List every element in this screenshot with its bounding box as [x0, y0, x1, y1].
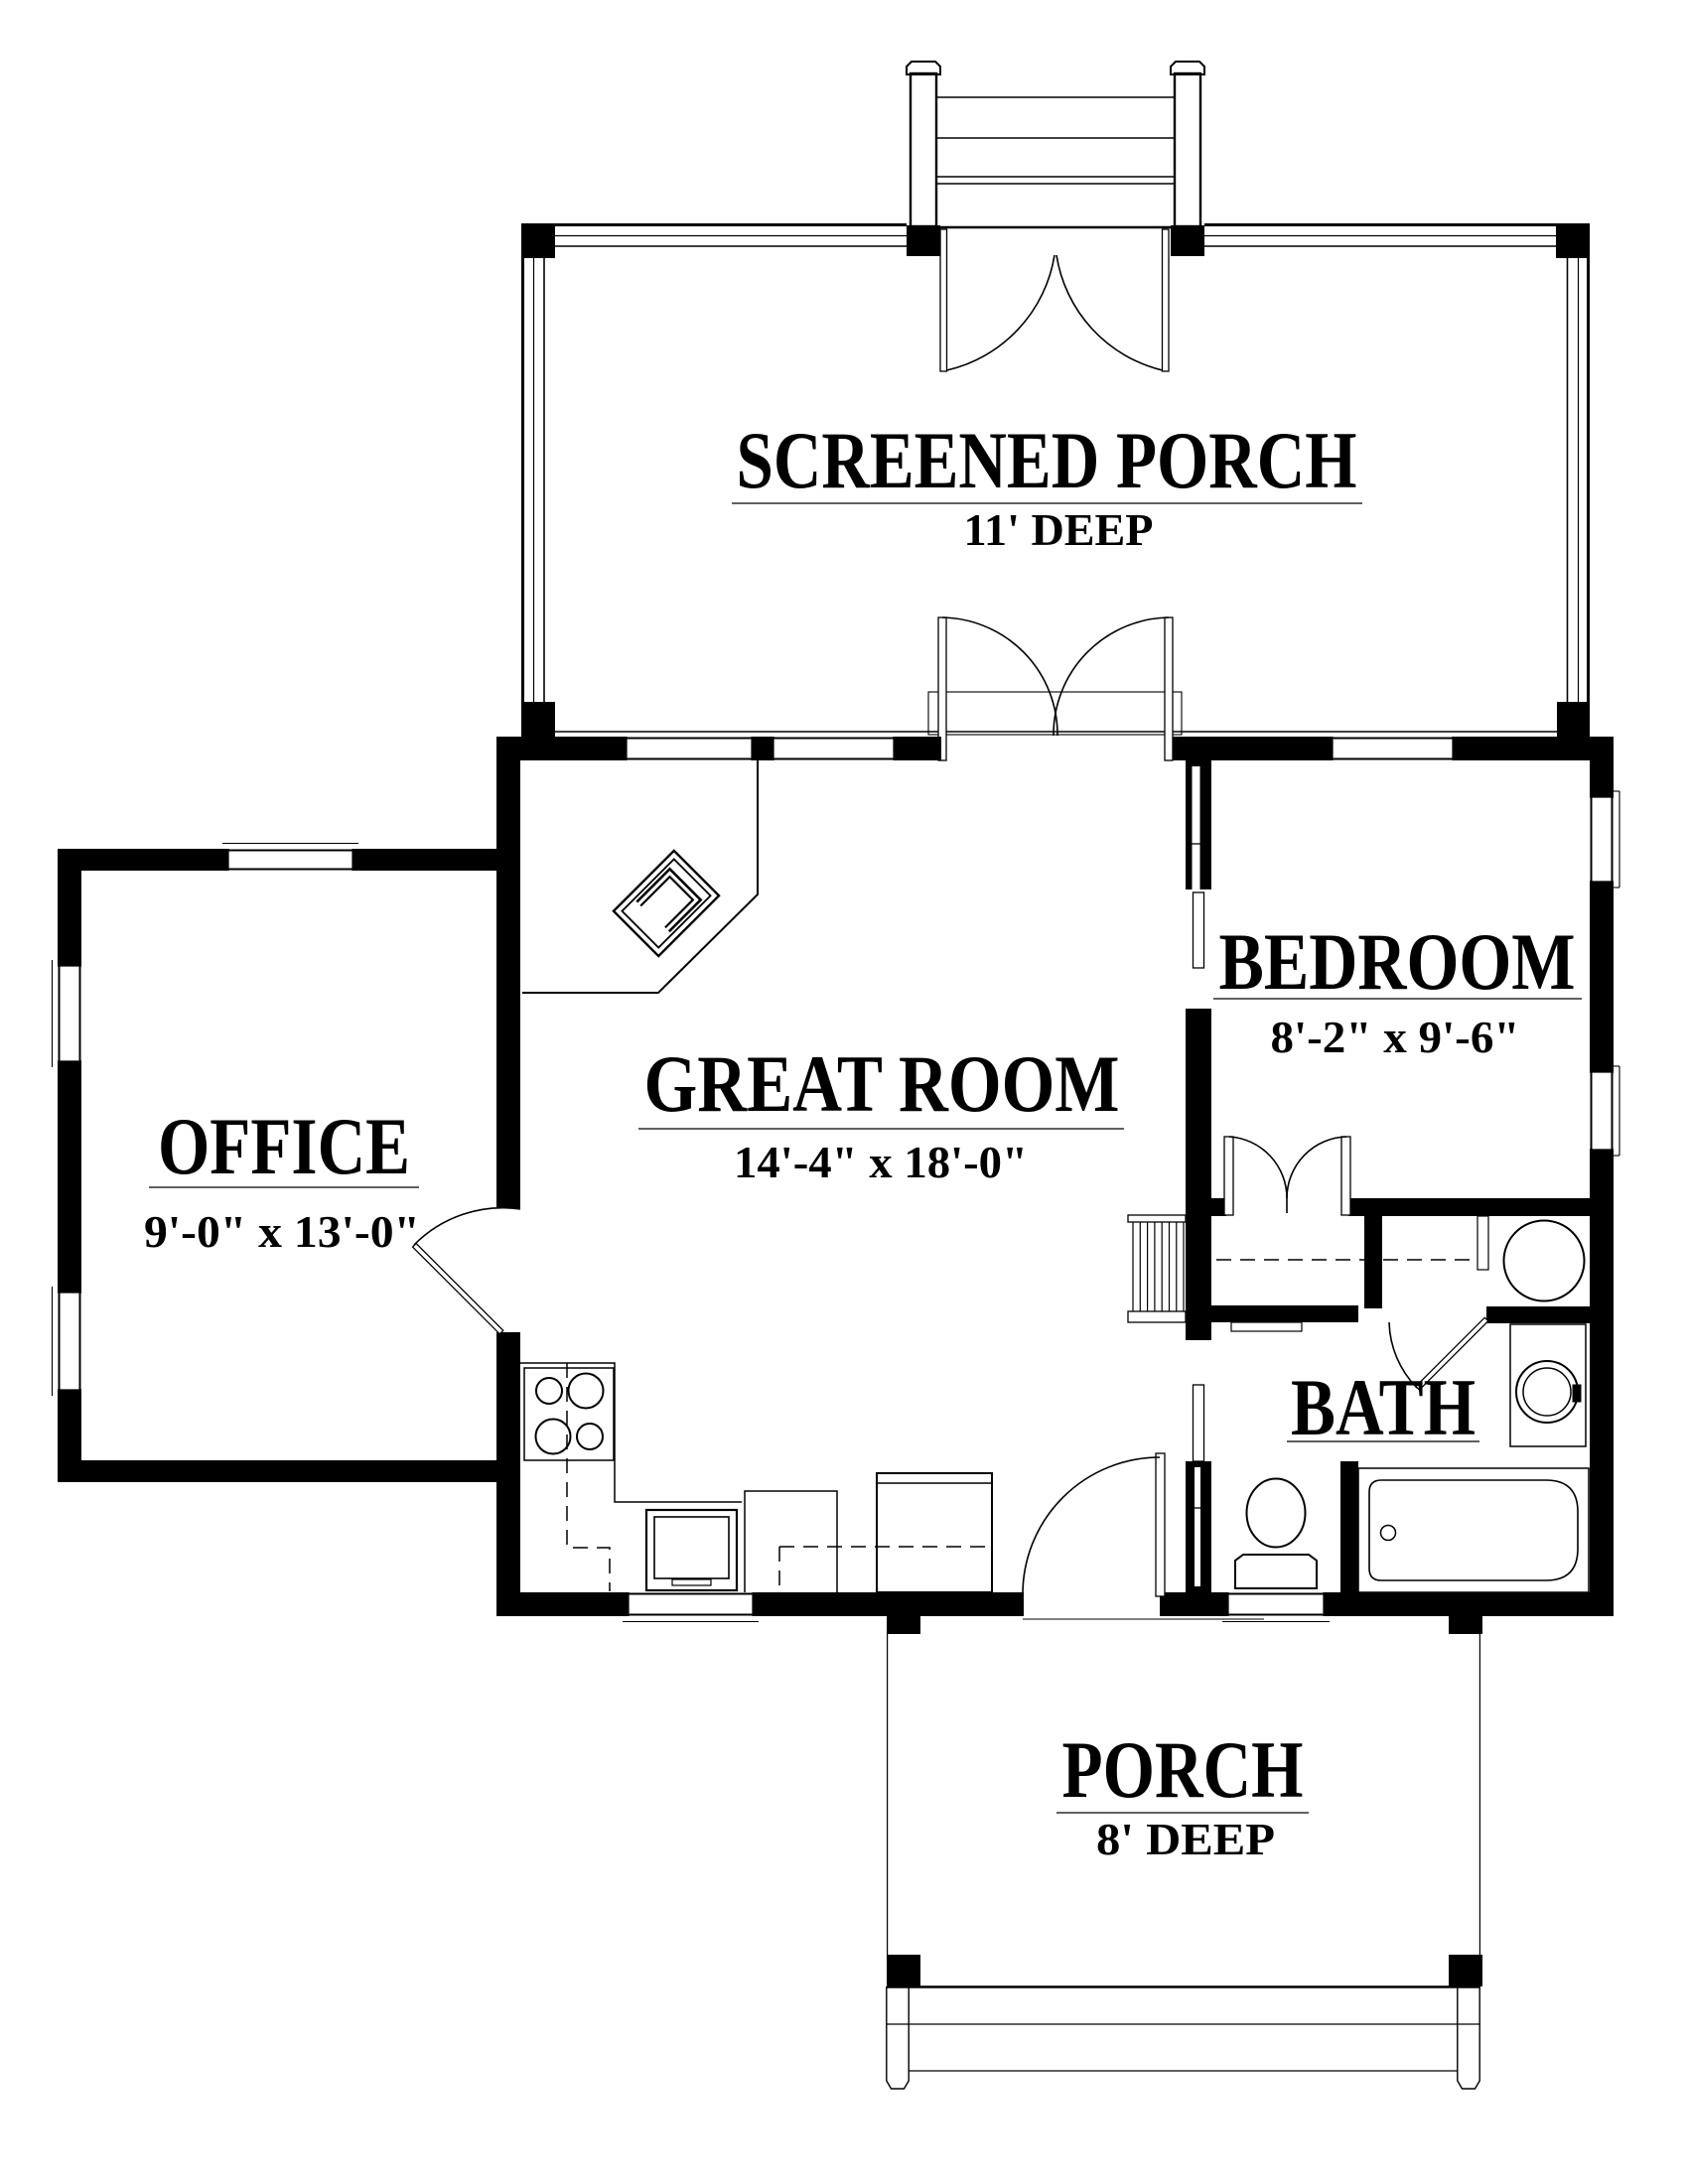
- svg-text:BATH: BATH: [1291, 1362, 1476, 1452]
- svg-text:SCREENED PORCH: SCREENED PORCH: [737, 415, 1357, 505]
- svg-text:BEDROOM: BEDROOM: [1219, 916, 1576, 1007]
- svg-text:14'-4" x 18'-0": 14'-4" x 18'-0": [734, 1137, 1028, 1187]
- svg-text:8' DEEP: 8' DEEP: [1096, 1814, 1275, 1864]
- svg-text:PORCH: PORCH: [1062, 1724, 1304, 1815]
- svg-text:9'-0" x 13'-0": 9'-0" x 13'-0": [144, 1206, 420, 1257]
- svg-text:8'-2" x 9'-6": 8'-2" x 9'-6": [1271, 1012, 1520, 1062]
- svg-text:11' DEEP: 11' DEEP: [964, 504, 1154, 555]
- svg-text:GREAT ROOM: GREAT ROOM: [644, 1038, 1120, 1129]
- svg-text:OFFICE: OFFICE: [158, 1101, 410, 1191]
